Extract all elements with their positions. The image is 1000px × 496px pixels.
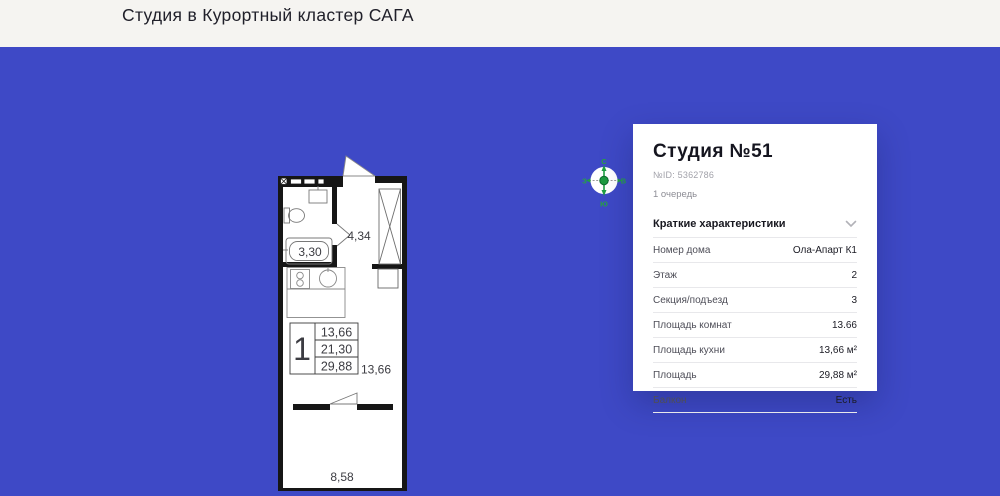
spec-row-rooms-area: Площадь комнат 13.66	[653, 312, 857, 337]
spec-row-kitchen-area: Площадь кухни 13,66 м²	[653, 337, 857, 362]
spec-value: 13,66 м²	[819, 345, 857, 356]
page-header: Студия в Курортный кластер САГА	[0, 0, 1000, 47]
unit-info-card: Студия №51 №ID: 5362786 1 очередь Кратки…	[633, 124, 877, 391]
spec-row-balcony: Балкон Есть	[653, 387, 857, 412]
characteristics-title: Краткие характеристики	[653, 218, 785, 230]
page-title: Студия в Курортный кластер САГА	[122, 5, 414, 26]
spec-value: 2	[851, 270, 857, 281]
compass-north-label: С	[601, 157, 607, 166]
spec-value: Ола-Апарт К1	[793, 245, 857, 256]
spec-label: Площадь кухни	[653, 345, 725, 356]
compass-east-label: В	[621, 177, 627, 186]
total-area-value: 29,88	[321, 360, 352, 374]
spec-row-house: Номер дома Ола-Апарт К1	[653, 237, 857, 262]
room-area-label: 13,66	[361, 363, 391, 377]
characteristics-header[interactable]: Краткие характеристики	[653, 216, 857, 232]
spec-row-section: Секция/подъезд 3	[653, 287, 857, 312]
spec-value: 13.66	[832, 320, 857, 331]
unit-title: Студия №51	[653, 141, 857, 163]
area-without-balcony-value: 21,30	[321, 343, 352, 357]
duct-shaft	[378, 269, 398, 288]
spec-table: Номер дома Ола-Апарт К1 Этаж 2 Секция/по…	[653, 237, 857, 413]
spec-label: Номер дома	[653, 245, 710, 256]
plan-canvas: 1 13,66 21,30 29,88 4,34 3,30 13,66 8,58…	[0, 47, 1000, 484]
bathroom-area-label: 3,30	[298, 245, 322, 259]
spec-row-total-area: Площадь 29,88 м²	[653, 362, 857, 387]
spec-label: Этаж	[653, 270, 677, 281]
unit-queue: 1 очередь	[653, 189, 857, 200]
hallway-area-label: 4,34	[347, 229, 371, 243]
spec-row-floor: Этаж 2	[653, 262, 857, 287]
floor-plan: 1 13,66 21,30 29,88 4,34 3,30 13,66 8,58	[276, 152, 410, 496]
entrance-door-swing	[343, 156, 375, 176]
spec-label: Площадь	[653, 370, 697, 381]
rooms-count: 1	[293, 331, 311, 367]
compass-icon: С Ю З В	[580, 154, 628, 208]
compass-west-label: З	[582, 177, 587, 186]
spec-value: 29,88 м²	[819, 370, 857, 381]
spec-value: Есть	[836, 395, 857, 406]
spec-label: Площадь комнат	[653, 320, 732, 331]
spec-value: 3	[851, 295, 857, 306]
chevron-down-icon[interactable]	[845, 220, 857, 228]
living-area-value: 13,66	[321, 326, 352, 340]
spec-label: Балкон	[653, 395, 687, 406]
stamp-table: 1 13,66 21,30 29,88	[290, 323, 358, 374]
unit-id: №ID: 5362786	[653, 170, 857, 180]
balcony-area-label: 8,58	[330, 470, 354, 484]
compass-south-label: Ю	[600, 200, 608, 209]
spec-label: Секция/подъезд	[653, 295, 728, 306]
